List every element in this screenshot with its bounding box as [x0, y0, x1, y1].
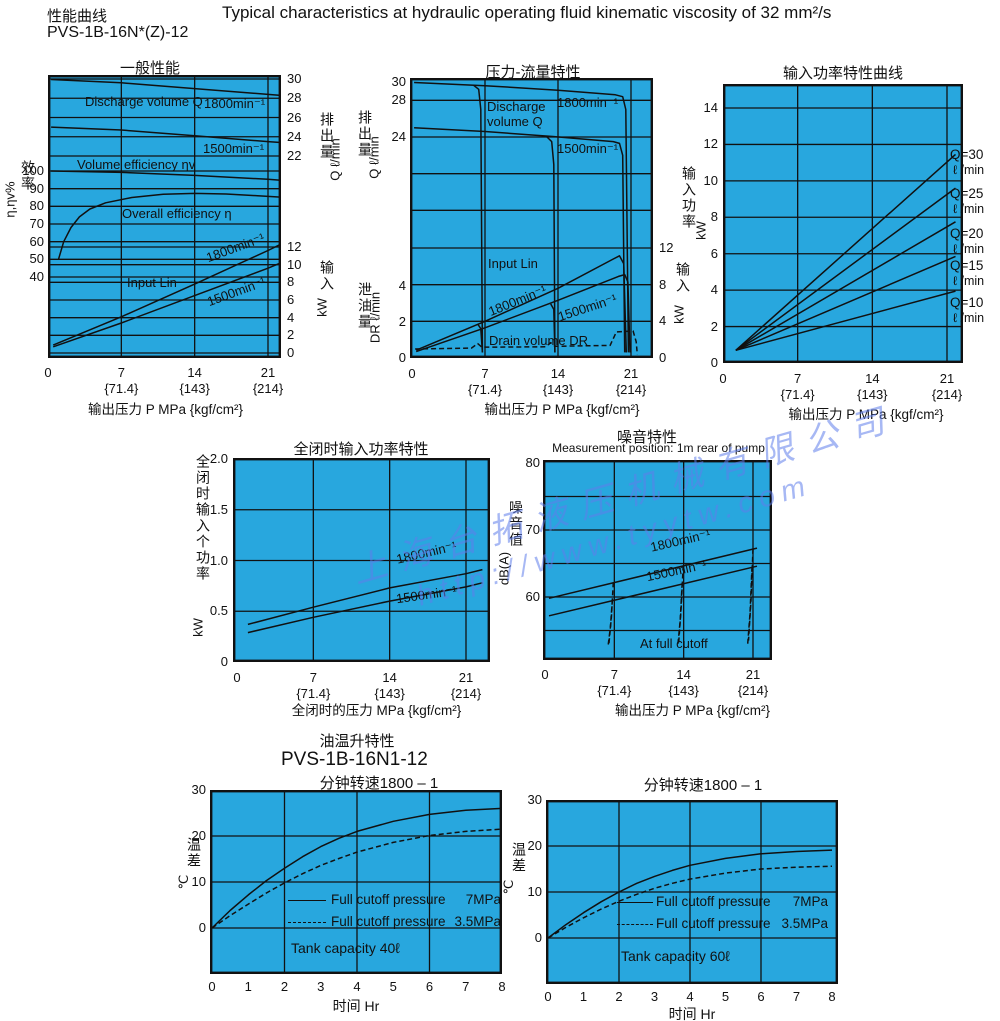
tick-label: 0 [494, 930, 542, 945]
tick-label: 6 [670, 246, 718, 261]
q10-label: Q=10 [950, 295, 983, 310]
tick-label: 10 [287, 257, 335, 272]
tick-label: 21 [442, 670, 490, 685]
tick-label: {143} [530, 382, 586, 397]
tick-label: 4 [670, 282, 718, 297]
tick-label: 7 [97, 365, 145, 380]
tick-label: 28 [287, 90, 335, 105]
tick-label: 14 [171, 365, 219, 380]
tick-label: 2 [358, 314, 406, 329]
tick-label: 0 [699, 371, 747, 386]
tick-label: {71.4} [285, 686, 341, 701]
tick-label: {143} [656, 683, 712, 698]
input-lin-label: Input Lin [127, 275, 177, 290]
legend-value: 3.5MPa [781, 916, 828, 931]
legend-dashed-line [288, 922, 326, 923]
pq-discharge-label-1: Discharge [487, 99, 546, 114]
tick-label: 8 [670, 209, 718, 224]
tick-label: 100 [0, 163, 44, 178]
tick-label: 2 [287, 327, 335, 342]
tick-label: 7 [774, 371, 822, 386]
page-title-cn: 性能曲线 [47, 5, 107, 26]
tick-label: 14 [660, 667, 708, 682]
discharge-volume-label: Discharge volume Q [85, 94, 203, 109]
q15-label: Q=15 [950, 258, 983, 273]
tick-label: 14 [670, 100, 718, 115]
temp-section-title: 油温升特性 [277, 730, 437, 751]
chart-power-plot [723, 84, 963, 363]
chart-temp40-xlabel: 时间 Hr [304, 996, 408, 1016]
legend-solid-line [617, 902, 653, 903]
q20-unit: ℓ /min [953, 242, 984, 256]
speed-1500-label: 1500min⁻¹ [203, 141, 264, 157]
tick-label: 20 [158, 828, 206, 843]
pq-input-lin-label: Input Lin [488, 256, 538, 271]
tick-label: 2.0 [180, 451, 228, 466]
tick-label: 10 [158, 874, 206, 889]
legend-entry-3-5mpa: Full cutoff pressure 3.5MPa [331, 914, 501, 929]
chart-general-xlabel: 输出压力 P MPa {kgf/cm²} [58, 398, 273, 418]
temp-section-model: PVS-1B-16N1-12 [281, 749, 428, 771]
tick-label: 0 [521, 667, 569, 682]
tick-label: 30 [358, 74, 406, 89]
at-full-cutoff-label: At full cutoff [640, 636, 708, 651]
tick-label: 0 [388, 366, 436, 381]
chart-temp60-title: 分钟转速1800 – 1 [613, 774, 793, 795]
tick-label: {214} [603, 382, 659, 397]
tick-label: 0 [213, 670, 261, 685]
chart-cutoff-title: 全闭时输入功率特性 [246, 438, 476, 459]
chart-noise-plot [543, 460, 772, 660]
tank-capacity-60-label: Tank capacity 60ℓ [621, 948, 730, 964]
legend-label: Full cutoff pressure [656, 916, 771, 931]
chart-noise-subtitle: Measurement position: 1m rear of pump [541, 441, 776, 455]
chart-pq-xlabel: 输出压力 P MPa {kgf/cm²} [452, 398, 672, 418]
tick-label: 14 [848, 371, 896, 386]
q25-unit: ℓ /min [953, 202, 984, 216]
tick-label: 60 [492, 589, 540, 604]
tick-label: 0.5 [180, 603, 228, 618]
tick-label: 8 [287, 274, 335, 289]
tick-label: {71.4} [770, 387, 826, 402]
legend-solid-line [288, 900, 326, 901]
tick-label: 24 [358, 129, 406, 144]
tick-label: 21 [607, 366, 655, 381]
tick-label: 28 [358, 92, 406, 107]
tick-label: {143} [844, 387, 900, 402]
tick-label: 2 [670, 319, 718, 334]
tick-label: 6 [287, 292, 335, 307]
tick-label: {71.4} [93, 381, 149, 396]
tick-label: {214} [919, 387, 975, 402]
tick-label: 40 [0, 269, 44, 284]
tick-label: 1.5 [180, 502, 228, 517]
legend-label: Full cutoff pressure [331, 914, 446, 929]
tick-label: 0 [24, 365, 72, 380]
tick-label: 30 [287, 71, 335, 86]
speed-1800-label: 1800min⁻¹ [204, 96, 265, 112]
tick-label: 30 [494, 792, 542, 807]
tick-label: 21 [923, 371, 971, 386]
q25-label: Q=25 [950, 186, 983, 201]
tick-label: 80 [0, 198, 44, 213]
catalog-page: 性能曲线 Typical characteristics at hydrauli… [0, 0, 1000, 1021]
tank-capacity-40-label: Tank capacity 40ℓ [291, 940, 400, 956]
legend-entry-7mpa: Full cutoff pressure 7MPa [656, 894, 828, 909]
tick-label: 12 [670, 136, 718, 151]
tick-label: 10 [494, 884, 542, 899]
noise-axis-unit: dB(A) [497, 542, 512, 596]
tick-label: 50 [0, 251, 44, 266]
q30-unit: ℓ /min [953, 163, 984, 177]
chart-cutoff-plot [233, 458, 490, 662]
tick-label: 30 [158, 782, 206, 797]
tick-label: {214} [438, 686, 494, 701]
tick-label: 24 [287, 129, 335, 144]
q20-label: Q=20 [950, 226, 983, 241]
q10-unit: ℓ /min [953, 311, 984, 325]
tick-label: 1.0 [180, 553, 228, 568]
tick-label: 21 [244, 365, 292, 380]
tick-label: {214} [240, 381, 296, 396]
tick-label: 8 [808, 989, 856, 1004]
chart-noise-xlabel: 输出压力 P MPa {kgf/cm²} [585, 699, 800, 719]
tick-label: 0 [287, 345, 335, 360]
tick-label: 7 [289, 670, 337, 685]
page-model: PVS-1B-16N*(Z)-12 [47, 24, 188, 42]
drain-volume-label: Drain volume DR [489, 333, 588, 348]
chart-temp40-title: 分钟转速1800 – 1 [293, 772, 465, 793]
tick-label: 12 [287, 239, 335, 254]
pq-1800-label: 1800min⁻¹ [557, 95, 618, 111]
volume-efficiency-label: Volume efficiency ηv [77, 157, 195, 172]
tick-label: 22 [287, 148, 335, 163]
tick-label: 0 [180, 654, 228, 669]
legend-value: 7MPa [793, 894, 828, 909]
tick-label: {71.4} [457, 382, 513, 397]
chart-power-title: 输入功率特性曲线 [753, 62, 933, 83]
tick-label: 7 [590, 667, 638, 682]
tick-label: 20 [494, 838, 542, 853]
tick-label: 60 [0, 234, 44, 249]
legend-label: Full cutoff pressure [331, 892, 446, 907]
chart-temp60-xlabel: 时间 Hr [640, 1004, 744, 1021]
tick-label: {143} [362, 686, 418, 701]
q30-label: Q=30 [950, 147, 983, 162]
pq-1500-label: 1500min⁻¹ [557, 141, 618, 157]
legend-dashed-line [617, 924, 653, 925]
tick-label: {214} [725, 683, 781, 698]
tick-label: 70 [492, 522, 540, 537]
tick-label: 70 [0, 216, 44, 231]
tick-label: 90 [0, 181, 44, 196]
q15-unit: ℓ /min [953, 274, 984, 288]
tick-label: {143} [167, 381, 223, 396]
page-title-en: Typical characteristics at hydraulic ope… [222, 3, 831, 23]
tick-label: {71.4} [586, 683, 642, 698]
legend-value: 3.5MPa [454, 914, 501, 929]
legend-label: Full cutoff pressure [656, 894, 771, 909]
chart-pq-title: 压力-流量特性 [443, 61, 623, 82]
tick-label: 14 [534, 366, 582, 381]
tick-label: 0 [158, 920, 206, 935]
tick-label: 10 [670, 173, 718, 188]
tick-label: 0 [670, 355, 718, 370]
overall-efficiency-label: Overall efficiency η [122, 206, 232, 221]
chart-power-xlabel: 输出压力 P MPa {kgf/cm²} [752, 403, 980, 423]
tick-label: 80 [492, 455, 540, 470]
tick-label: 7 [461, 366, 509, 381]
tick-label: 26 [287, 110, 335, 125]
tick-label: 21 [729, 667, 777, 682]
tick-label: 4 [358, 278, 406, 293]
tick-label: 14 [366, 670, 414, 685]
legend-entry-3-5mpa: Full cutoff pressure 3.5MPa [656, 916, 828, 931]
legend-entry-7mpa: Full cutoff pressure 7MPa [331, 892, 501, 907]
tick-label: 4 [287, 310, 335, 325]
chart-general-title: 一般性能 [75, 57, 225, 78]
tick-label: 8 [478, 979, 526, 994]
pq-discharge-label-2: volume Q [487, 114, 543, 129]
tick-label: 0 [358, 350, 406, 365]
chart-cutoff-xlabel: 全闭时的压力 MPa {kgf/cm²} [264, 699, 489, 719]
